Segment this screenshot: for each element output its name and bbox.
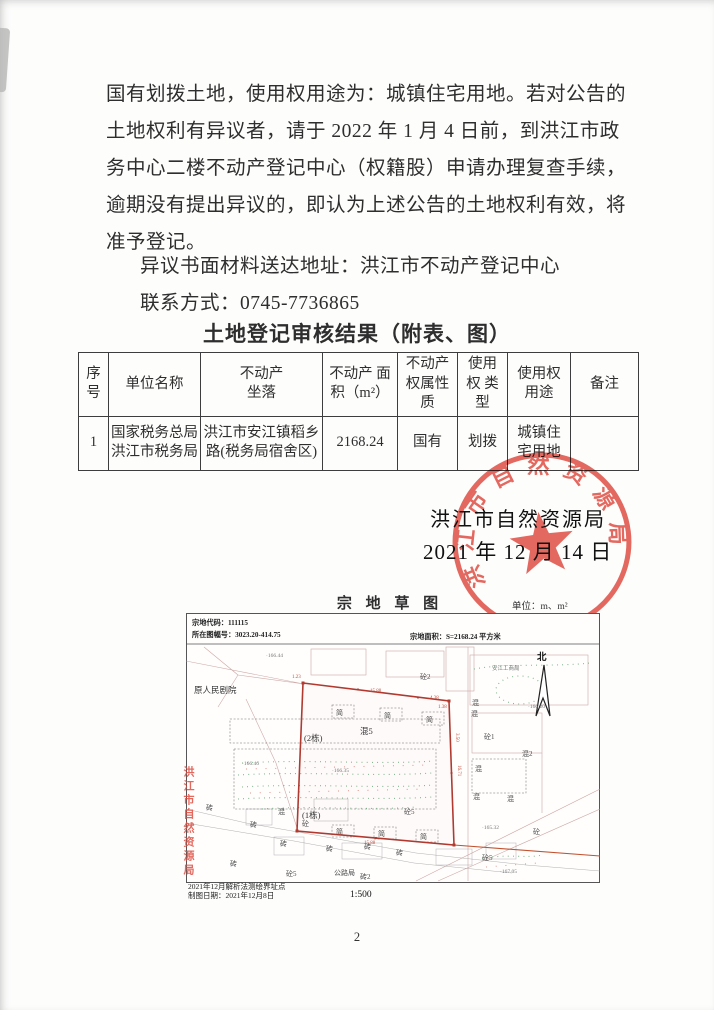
map-annotation: (1栋) [302, 810, 321, 820]
map-annotation: 公路局 [334, 868, 355, 877]
map-annotation: ·166.46 [242, 761, 259, 767]
map-footer-notes: 2021年12月解析法测绘界址点 制图日期：2021年12月8日 [188, 883, 286, 900]
map-annotation: ·165.32 [482, 825, 499, 831]
cell-area: 2168.24 [323, 416, 398, 470]
map-annotation: 简 [336, 708, 343, 717]
drawing-date: 制图日期：2021年12月8日 [188, 892, 286, 901]
notice-line: 土地权利有异议者，请于 2022 年 1 月 4 日前，到洪江市政 [106, 113, 646, 150]
col-header-location: 不动产 坐落 [201, 353, 323, 417]
notice-line: 国有划拨土地，使用权用途为：城镇住宅用地。若对公告的 [106, 76, 646, 113]
map-annotation: 砖2 [360, 872, 371, 881]
map-annotation: 砖 [396, 848, 403, 857]
map-annotation: ·166.44 [266, 653, 283, 659]
map-annotation: 砖 [250, 820, 257, 829]
map-annotation: 砖 [206, 803, 213, 812]
map-annotation: 15.88 [370, 689, 382, 694]
map-annotation: 1.23 [292, 675, 301, 680]
cell-seq: 1 [79, 416, 109, 470]
map-annotation: 砼5 [482, 853, 493, 862]
document-page: 国有划拨土地，使用权用途为：城镇住宅用地。若对公告的 土地权利有异议者，请于 2… [0, 0, 714, 1010]
col-header-use: 使用权 用途 [508, 353, 571, 417]
col-header-remark: 备注 [571, 353, 639, 417]
map-annotation: 北 [537, 651, 547, 663]
map-annotation: 砼 [533, 827, 540, 836]
map-annotation: 混5 [360, 726, 373, 736]
cell-remark [571, 416, 639, 470]
map-annotation: 16.71 [456, 765, 461, 777]
map-annotation: ·167.05 [500, 869, 517, 875]
map-annotation: 混 [472, 698, 479, 707]
land-registration-table: 序 号 单位名称 不动产 坐落 不动产 面 积（m²） 不动产 权属性 质 使用… [78, 352, 639, 471]
map-unit-label: 单位：m、m² [512, 598, 568, 612]
map-annotation: 15.88 [364, 841, 376, 846]
table-header-row: 序 号 单位名称 不动产 坐落 不动产 面 积（m²） 不动产 权属性 质 使用… [79, 353, 639, 417]
parcel-sketch-map: 宗地代码：111115 所在图幅号：3023.20-414.75 宗地面积：S=… [186, 613, 600, 883]
notice-line: 务中心二楼不动产登记中心（权籍股）申请办理复查手续， [106, 150, 646, 187]
col-header-right-type: 使用 权 类 型 [458, 353, 508, 417]
map-annotation: 砼5 [404, 807, 415, 816]
map-annotation: 简 [336, 827, 343, 836]
side-stamp-text: 洪江市自然资源局 [180, 766, 196, 884]
parcel-code: 宗地代码：111115 [192, 618, 248, 627]
contact-phone: 联系方式：0745-7736865 [140, 286, 360, 315]
map-annotation: 3.50 [454, 733, 459, 742]
map-annotation: 原人民剧院 [194, 685, 237, 695]
cell-unit: 国家税务总局 洪江市税务局 [109, 416, 201, 470]
table-title: 土地登记审核结果（附表、图） [0, 318, 714, 348]
map-annotation: (2栋) [304, 733, 323, 743]
map-annotation: ·166.20 [528, 704, 545, 710]
map-annotation: 混 [507, 794, 514, 803]
map-annotation: 简 [426, 715, 433, 724]
map-annotation: 简 [384, 711, 391, 720]
scan-smudge [0, 28, 10, 93]
issue-date: 2021 年 12 月 14 日 [423, 536, 612, 566]
notice-paragraph: 国有划拨土地，使用权用途为：城镇住宅用地。若对公告的 土地权利有异议者，请于 2… [106, 76, 646, 261]
cell-location: 洪江市安江镇稻乡 路(税务局宿舍区) [201, 416, 323, 470]
map-annotation: 4.38 [430, 696, 439, 701]
map-annotation: 混 [475, 764, 482, 773]
map-annotation: 混 [471, 709, 478, 718]
col-header-seq: 序 号 [79, 353, 109, 417]
map-annotation: 砼1 [484, 732, 495, 741]
col-header-ownership: 不动产 权属性 质 [398, 353, 458, 417]
cell-right-type: 划拨 [458, 416, 508, 470]
map-title: 宗 地 草 图 [300, 592, 480, 613]
map-annotation: 混 [473, 792, 480, 801]
map-scale: 1:500 [350, 890, 372, 900]
notice-line: 逾期没有提出异议的，即认为上述公告的土地权利有效，将 [106, 187, 646, 224]
map-annotation: 混2 [522, 749, 533, 758]
map-annotation: 简 [420, 832, 427, 841]
issuing-authority: 洪江市自然资源局 [430, 503, 606, 532]
map-annotation: 安江工商局 [492, 664, 520, 672]
col-header-area: 不动产 面 积（m²） [323, 353, 398, 417]
map-annotation: 1.38 [438, 705, 447, 710]
page-number: 2 [0, 930, 714, 945]
map-annotation: 砖 [280, 839, 287, 848]
map-annotation: 砖 [326, 844, 333, 853]
sheet-number: 所在图幅号：3023.20-414.75 [192, 630, 281, 639]
map-annotation: 砼 [302, 819, 309, 828]
table-row: 1 国家税务总局 洪江市税务局 洪江市安江镇稻乡 路(税务局宿舍区) 2168.… [79, 416, 639, 470]
col-header-unit: 单位名称 [109, 353, 201, 417]
map-annotation: 砼5 [286, 869, 297, 878]
map-annotation: 砖 [230, 859, 237, 868]
cell-ownership: 国有 [398, 416, 458, 470]
objection-address: 异议书面材料送达地址：洪江市不动产登记中心 [140, 249, 560, 278]
map-annotation: ·166.35 [332, 768, 349, 774]
map-annotation: 砼2 [420, 672, 431, 681]
map-annotation: 简 [378, 829, 385, 838]
map-annotation: 混 [278, 807, 285, 816]
cell-use: 城镇住 宅用地 [508, 416, 571, 470]
parcel-area: 宗地面积：S=2168.24 平方米 [410, 632, 502, 641]
